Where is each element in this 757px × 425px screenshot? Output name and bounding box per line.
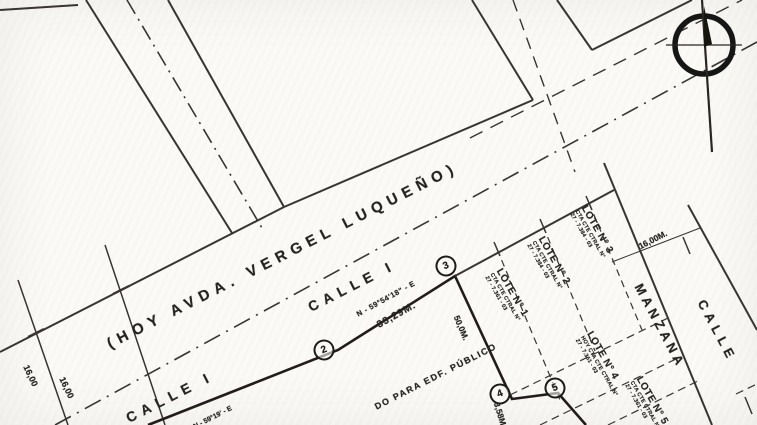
street-edge bbox=[557, 0, 592, 50]
centerline bbox=[470, 0, 742, 138]
north-compass-icon bbox=[666, 0, 742, 152]
lot-boundary bbox=[736, 384, 757, 394]
street-edge bbox=[472, 0, 533, 100]
block-edge bbox=[0, 5, 78, 10]
dimension-line bbox=[18, 280, 68, 425]
centerline bbox=[127, 0, 262, 228]
street-edge bbox=[168, 0, 284, 207]
plan-canvas: (HOY AVDA. VERGEL LUQUEÑO) CALLE I CALLE… bbox=[0, 0, 757, 425]
leader-dash bbox=[683, 237, 690, 254]
street-edge bbox=[86, 0, 232, 233]
leader-dash bbox=[745, 397, 752, 414]
